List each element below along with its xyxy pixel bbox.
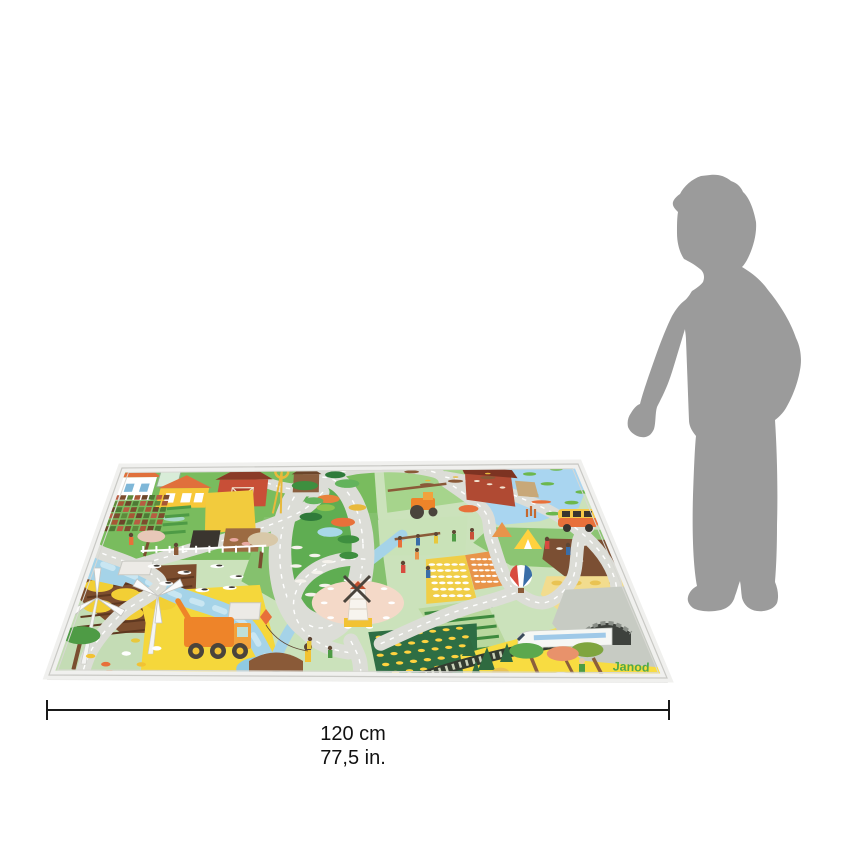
svg-text:77,5 in.: 77,5 in. bbox=[320, 747, 386, 769]
svg-text:120 cm: 120 cm bbox=[320, 723, 386, 745]
